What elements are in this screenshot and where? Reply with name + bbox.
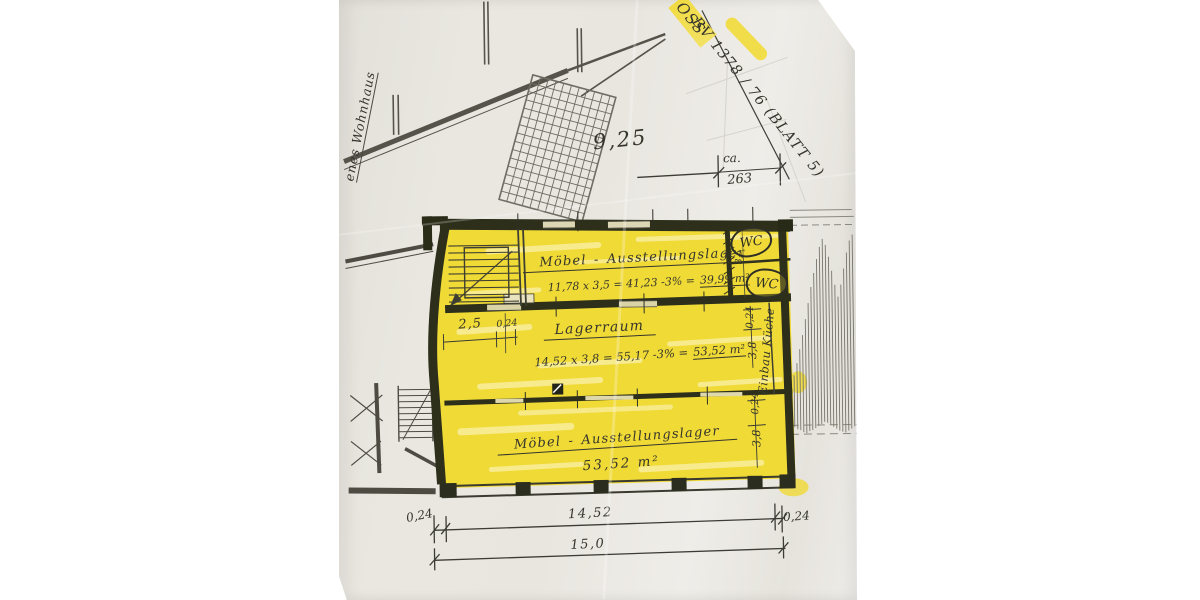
room-top-result: 39,99 m²: [700, 271, 750, 287]
wc-dim-3-5: 3,5: [734, 250, 744, 264]
right-hatch-area: [788, 209, 857, 434]
right-dim-3-8-top: 3,8: [746, 342, 759, 360]
right-dim-0-24-top: 0,24: [745, 306, 756, 328]
wc-label-1: WC: [739, 233, 764, 251]
bottom-dim-15-0: 15,0: [570, 536, 606, 553]
floor-plan-photo: enes Wohnhaus OSS BV 1378 / 76 (BLATT 5)…: [339, 0, 857, 600]
scanned-floorplan-page: enes Wohnhaus OSS BV 1378 / 76 (BLATT 5)…: [0, 0, 1200, 600]
wc-label-2: WC: [755, 275, 780, 292]
neighbour-building-left: [345, 244, 437, 492]
bottom-dim-0-24-right: 0,24: [783, 508, 811, 524]
stair-dim-2-5: 2,5: [458, 316, 483, 333]
drawing-area: enes Wohnhaus OSS BV 1378 / 76 (BLATT 5)…: [335, 0, 861, 600]
right-dim-3-8-bottom: 3,8: [750, 429, 763, 447]
dim-ca-label: ca.: [723, 151, 741, 165]
right-dim-0-24-bottom: 0,24: [750, 392, 761, 414]
stair-dim-0-24: 0,24: [496, 317, 518, 330]
